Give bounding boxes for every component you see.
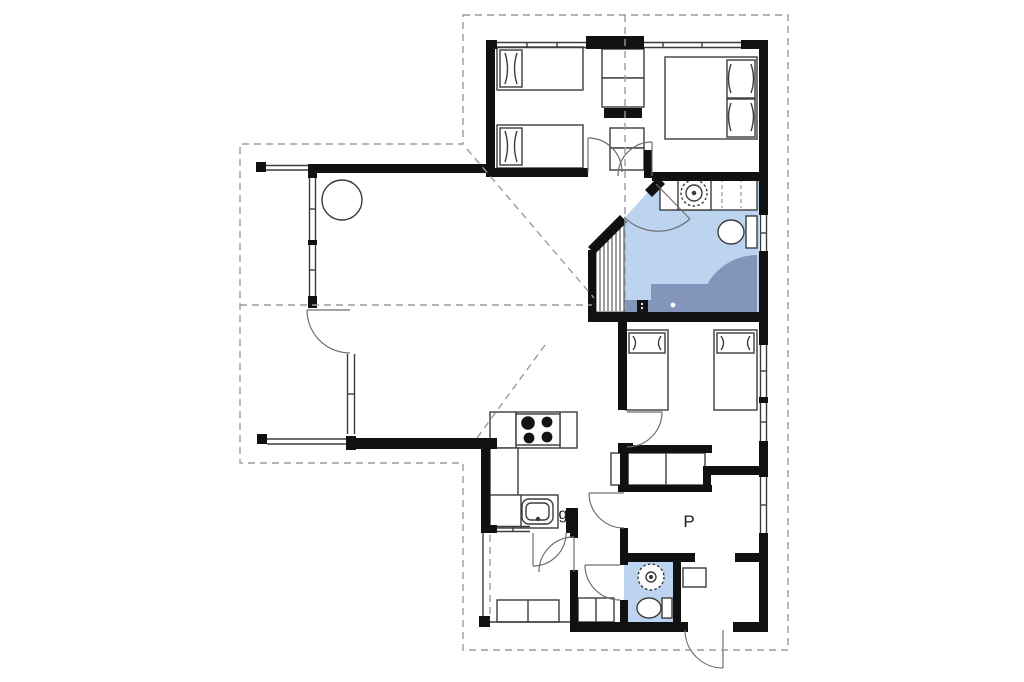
stove-icon xyxy=(516,414,560,445)
kitchen-note-label: g xyxy=(559,506,568,523)
labels: g P xyxy=(559,506,695,531)
door-icon xyxy=(685,630,723,668)
washbasin-icon xyxy=(681,180,707,206)
single-bed-icon xyxy=(497,47,583,90)
window-icon xyxy=(761,215,767,251)
pergola-post xyxy=(257,434,267,444)
door-icon xyxy=(627,412,662,447)
hall-note-label: P xyxy=(683,512,694,531)
pergola-beam xyxy=(267,439,346,444)
door-icon xyxy=(307,310,350,353)
door-icon xyxy=(589,493,624,528)
vanity-counter xyxy=(660,176,757,210)
door-icon xyxy=(585,565,620,600)
drain-dot xyxy=(671,303,676,308)
window-icon xyxy=(310,244,316,296)
window-icon xyxy=(761,403,767,441)
pergola-beam xyxy=(262,166,308,171)
single-bed-icon xyxy=(626,330,668,410)
window-icon xyxy=(310,178,316,240)
kitchen-sink-icon xyxy=(522,499,553,524)
door-icon xyxy=(533,533,566,566)
window-icon xyxy=(761,477,767,533)
washbasin-icon xyxy=(638,564,664,590)
heater-box xyxy=(637,300,648,312)
dining-table-icon xyxy=(322,180,362,220)
floor-plan-drawing: g P xyxy=(0,0,1024,682)
double-bed-icon xyxy=(665,57,757,139)
terrace-post xyxy=(479,616,490,627)
single-bed-icon xyxy=(714,330,757,410)
window-icon xyxy=(761,345,767,397)
furniture xyxy=(322,47,757,622)
floor-plan-canvas: g P xyxy=(0,0,1024,682)
window-icon xyxy=(348,354,355,434)
door-icon xyxy=(539,537,574,572)
single-bed-icon xyxy=(497,125,583,168)
pergola-post xyxy=(256,162,266,172)
entry-shelf xyxy=(683,568,706,587)
toilet-icon xyxy=(637,598,672,618)
